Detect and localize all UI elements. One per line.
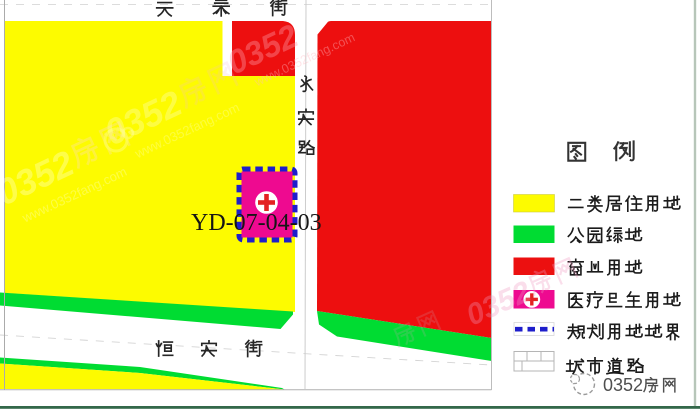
svg-text:YD-07-04-03: YD-07-04-03 (191, 210, 322, 236)
svg-text:0352: 0352 (603, 375, 643, 395)
